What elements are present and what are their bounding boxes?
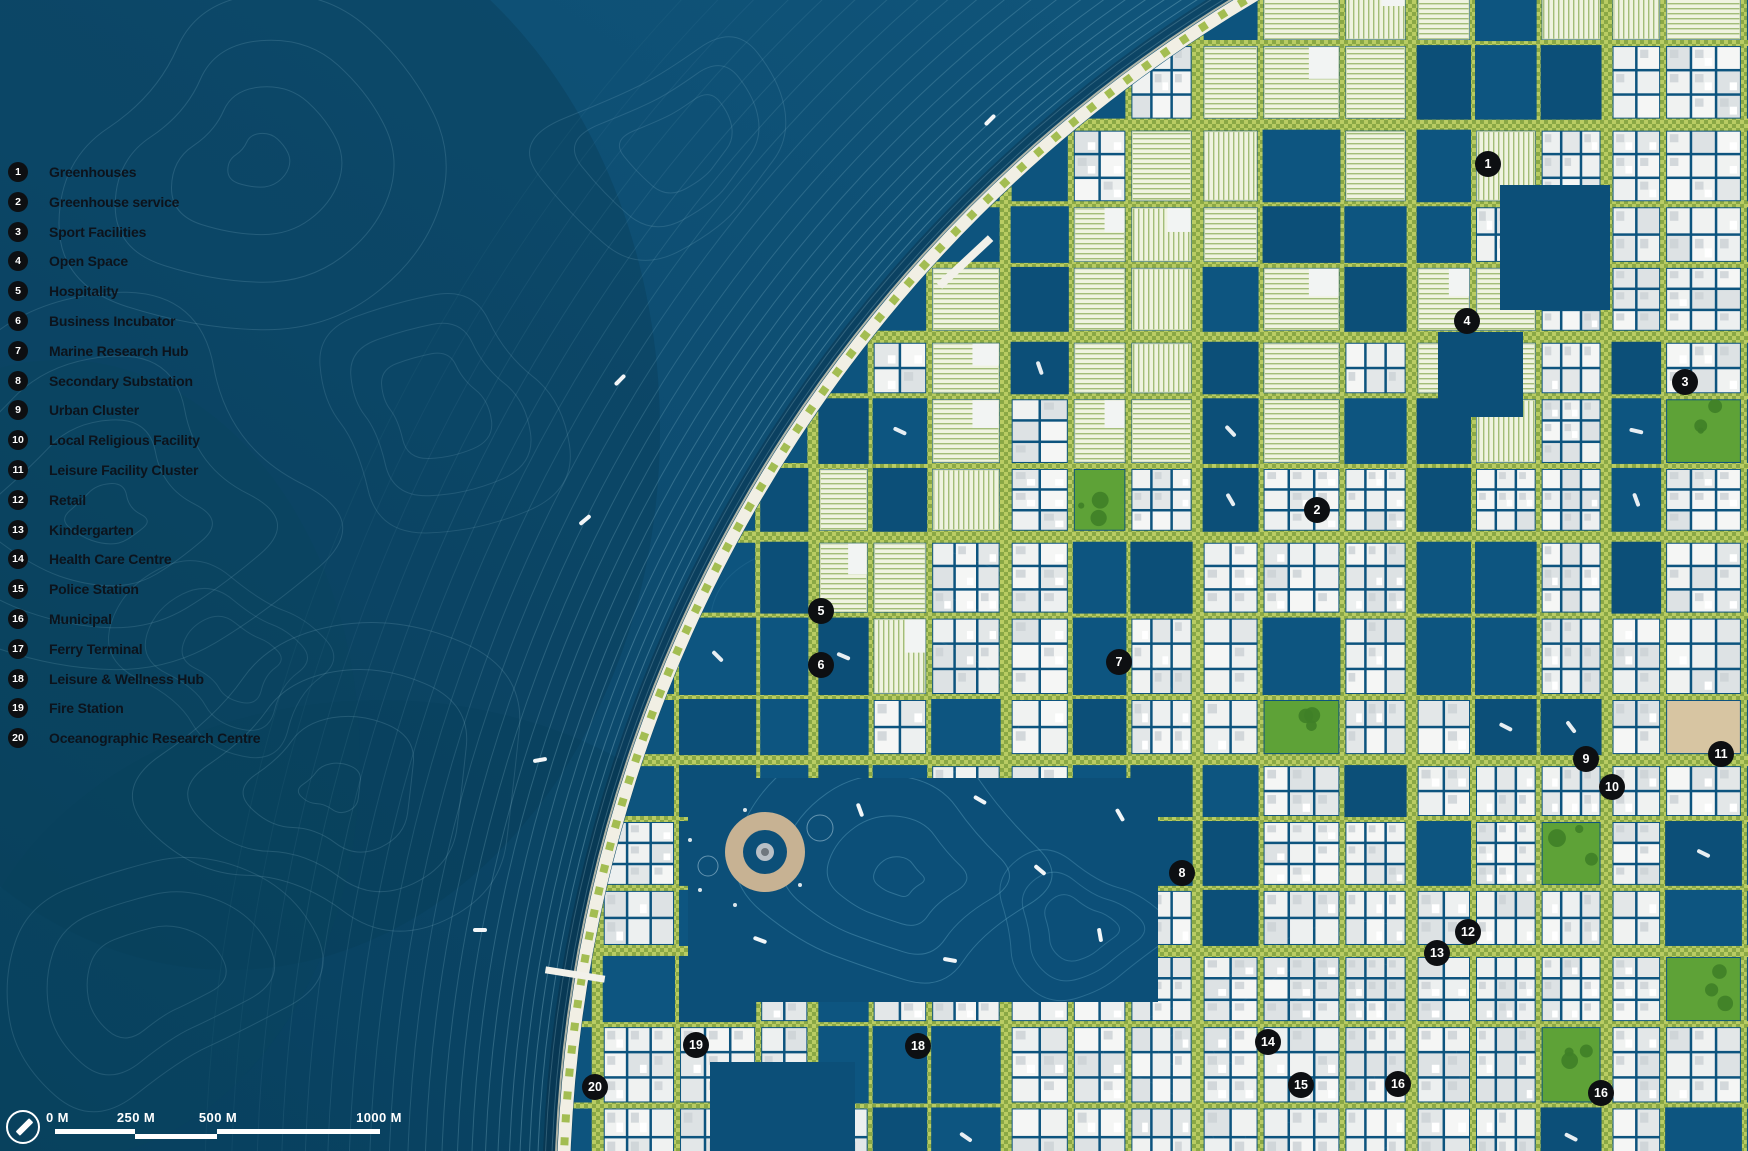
legend-item: 16Municipal	[8, 609, 260, 629]
map-marker[interactable]: 8	[1169, 860, 1195, 886]
legend-item: 13Kindergarten	[8, 520, 260, 540]
legend-number-badge: 19	[8, 698, 28, 718]
legend-number-badge: 16	[8, 609, 28, 629]
map-marker[interactable]: 15	[1288, 1072, 1314, 1098]
map-marker[interactable]: 4	[1454, 308, 1480, 334]
legend-item: 9Urban Cluster	[8, 400, 260, 420]
legend-item: 6Business Incubator	[8, 311, 260, 331]
legend-label: Leisure Facility Cluster	[49, 462, 198, 478]
legend-number-badge: 15	[8, 579, 28, 599]
legend-number-badge: 1	[8, 162, 28, 182]
map-marker[interactable]: 1	[1475, 151, 1501, 177]
legend-number-badge: 12	[8, 490, 28, 510]
legend-label: Local Religious Facility	[49, 432, 200, 448]
legend-label: Hospitality	[49, 283, 118, 299]
legend-item: 10Local Religious Facility	[8, 430, 260, 450]
legend-item: 1Greenhouses	[8, 162, 260, 182]
map-markers-layer: 1234567891011121314151616181920	[0, 0, 1748, 1151]
map-marker[interactable]: 16	[1588, 1080, 1614, 1106]
legend-item: 5Hospitality	[8, 281, 260, 301]
legend-number-badge: 17	[8, 639, 28, 659]
legend-number-badge: 10	[8, 430, 28, 450]
legend-label: Greenhouses	[49, 164, 136, 180]
map-marker[interactable]: 9	[1573, 746, 1599, 772]
legend-number-badge: 5	[8, 281, 28, 301]
legend-number-badge: 4	[8, 251, 28, 271]
legend-label: Business Incubator	[49, 313, 175, 329]
map-marker[interactable]: 2	[1304, 497, 1330, 523]
legend-item: 18Leisure & Wellness Hub	[8, 669, 260, 689]
map-marker[interactable]: 12	[1455, 919, 1481, 945]
legend-label: Urban Cluster	[49, 402, 139, 418]
legend-label: Retail	[49, 492, 86, 508]
legend-label: Fire Station	[49, 700, 124, 716]
legend-number-badge: 9	[8, 400, 28, 420]
legend-label: Police Station	[49, 581, 139, 597]
legend: 1Greenhouses 2Greenhouse service 3Sport …	[8, 162, 260, 758]
map-marker[interactable]: 13	[1424, 940, 1450, 966]
legend-number-badge: 20	[8, 728, 28, 748]
legend-label: Health Care Centre	[49, 551, 171, 567]
legend-item: 8Secondary Substation	[8, 371, 260, 391]
map-marker[interactable]: 11	[1708, 741, 1734, 767]
legend-number-badge: 14	[8, 549, 28, 569]
map-marker[interactable]: 7	[1106, 649, 1132, 675]
masterplan-canvas: 1234567891011121314151616181920 1Greenho…	[0, 0, 1748, 1151]
legend-number-badge: 7	[8, 341, 28, 361]
legend-label: Open Space	[49, 253, 128, 269]
legend-item: 14Health Care Centre	[8, 549, 260, 569]
legend-label: Secondary Substation	[49, 373, 193, 389]
legend-number-badge: 8	[8, 371, 28, 391]
legend-item: 2Greenhouse service	[8, 192, 260, 212]
legend-item: 7Marine Research Hub	[8, 341, 260, 361]
legend-number-badge: 11	[8, 460, 28, 480]
legend-number-badge: 2	[8, 192, 28, 212]
legend-item: 3Sport Facilities	[8, 222, 260, 242]
map-marker[interactable]: 10	[1599, 774, 1625, 800]
map-marker[interactable]: 6	[808, 652, 834, 678]
legend-number-badge: 3	[8, 222, 28, 242]
legend-label: Marine Research Hub	[49, 343, 188, 359]
map-marker[interactable]: 19	[683, 1032, 709, 1058]
legend-item: 4Open Space	[8, 251, 260, 271]
map-marker[interactable]: 16	[1385, 1071, 1411, 1097]
legend-number-badge: 13	[8, 520, 28, 540]
legend-item: 19Fire Station	[8, 698, 260, 718]
map-marker[interactable]: 18	[905, 1033, 931, 1059]
legend-item: 20Oceanographic Research Centre	[8, 728, 260, 748]
legend-item: 11Leisure Facility Cluster	[8, 460, 260, 480]
legend-number-badge: 18	[8, 669, 28, 689]
legend-label: Kindergarten	[49, 522, 134, 538]
legend-label: Oceanographic Research Centre	[49, 730, 260, 746]
legend-label: Greenhouse service	[49, 194, 179, 210]
legend-label: Leisure & Wellness Hub	[49, 671, 204, 687]
legend-number-badge: 6	[8, 311, 28, 331]
legend-item: 12Retail	[8, 490, 260, 510]
map-marker[interactable]: 5	[808, 598, 834, 624]
legend-label: Municipal	[49, 611, 112, 627]
legend-item: 15Police Station	[8, 579, 260, 599]
legend-label: Ferry Terminal	[49, 641, 142, 657]
map-marker[interactable]: 14	[1255, 1029, 1281, 1055]
map-marker[interactable]: 3	[1672, 369, 1698, 395]
legend-label: Sport Facilities	[49, 224, 146, 240]
legend-item: 17Ferry Terminal	[8, 639, 260, 659]
map-marker[interactable]: 20	[582, 1074, 608, 1100]
